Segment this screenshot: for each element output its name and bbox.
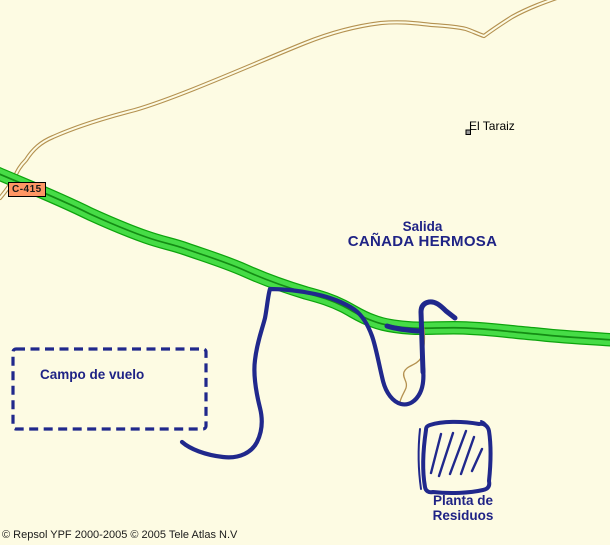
track-spur-vertical [421,302,455,372]
map-svg [0,0,610,545]
road-shield-c415: C-415 [8,182,46,197]
area-label-campo-de-vuelo: Campo de vuelo [40,367,144,382]
attribution-text: © Repsol YPF 2000-2005 © 2005 Tele Atlas… [2,529,237,541]
exit-label-line2: CAÑADA HERMOSA [330,234,515,250]
highway-c415 [0,173,610,340]
place-label-el-taraiz: El Taraiz [469,119,515,133]
waste-plant-symbol [419,421,491,493]
exit-label-line1: Salida [330,219,515,234]
map-canvas[interactable]: C-415 El Taraiz Salida CAÑADA HERMOSA Ca… [0,0,610,545]
track-loop [182,289,423,457]
airfield-boundary [13,349,206,429]
minor-road [0,0,562,198]
exit-label-canada-hermosa: Salida CAÑADA HERMOSA [330,219,515,250]
poi-label-line2: Residuos [412,509,514,524]
poi-label-line1: Planta de [412,494,514,509]
poi-label-planta-de-residuos: Planta de Residuos [412,494,514,523]
hatch-lines [431,431,482,476]
